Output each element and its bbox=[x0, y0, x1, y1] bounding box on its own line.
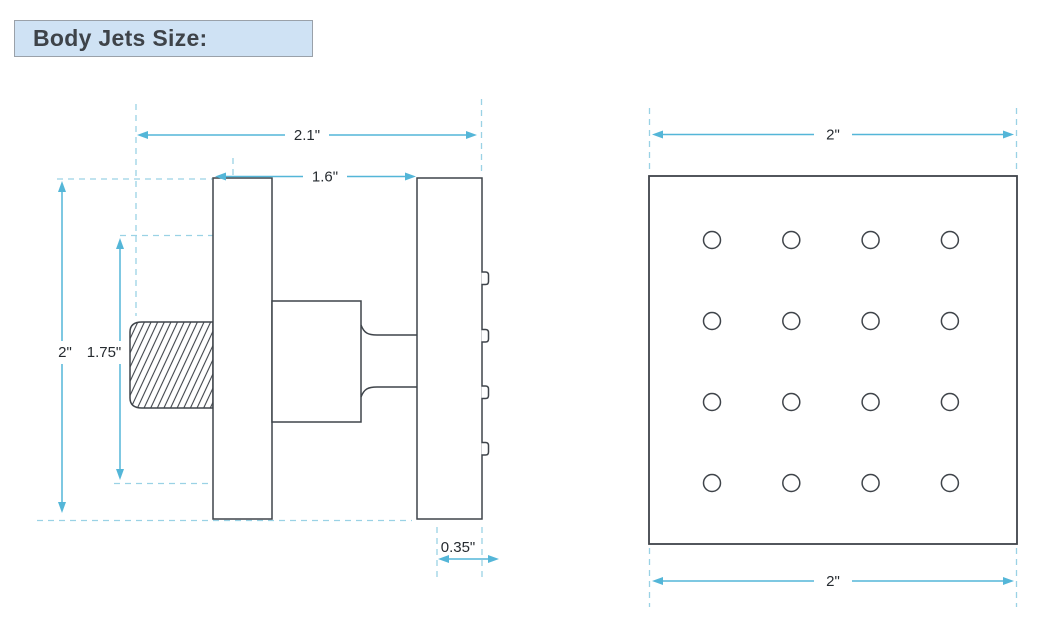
mounting-plate bbox=[213, 178, 272, 519]
dimension-label: 2" bbox=[826, 573, 840, 590]
neck-top-edge bbox=[361, 325, 417, 335]
arrowhead-down-icon bbox=[116, 469, 124, 480]
body-jet-drawing: 2.1" 1.6" 2" bbox=[0, 0, 1051, 642]
faceplate-front-face bbox=[649, 176, 1017, 544]
nozzle-hole bbox=[704, 313, 721, 330]
nozzle-hole bbox=[783, 394, 800, 411]
nozzle-tab-1 bbox=[482, 272, 489, 285]
arrowhead-down-icon bbox=[58, 502, 66, 513]
side-view-diagram: 2.1" 1.6" 2" bbox=[37, 99, 499, 579]
arrowhead-right-icon bbox=[488, 555, 499, 563]
arrowhead-right-icon bbox=[1003, 577, 1014, 585]
nozzle-hole bbox=[862, 313, 879, 330]
nozzle-hole bbox=[704, 394, 721, 411]
dimension-overall-depth: 2.1" bbox=[137, 127, 477, 144]
dimension-label: 1.75" bbox=[87, 344, 122, 361]
nozzle-hole bbox=[941, 313, 958, 330]
nozzle-hole bbox=[783, 313, 800, 330]
nozzle-hole bbox=[862, 475, 879, 492]
arrowhead-left-icon bbox=[652, 131, 663, 139]
nozzle-hole bbox=[862, 394, 879, 411]
nozzle-hole bbox=[941, 475, 958, 492]
valve-body-block bbox=[272, 301, 361, 422]
nozzle-tab-2 bbox=[482, 330, 489, 343]
nozzle-tab-3 bbox=[482, 386, 489, 399]
nozzle-hole bbox=[704, 232, 721, 249]
arrowhead-left-icon bbox=[438, 555, 449, 563]
page: Body Jets Size: bbox=[0, 0, 1051, 642]
dimension-inner-height: 1.75" bbox=[87, 238, 124, 480]
nozzle-tab-4 bbox=[482, 443, 489, 456]
arrowhead-left-icon bbox=[137, 131, 148, 139]
dimension-label: 0.35" bbox=[441, 539, 476, 556]
arrowhead-left-icon bbox=[652, 577, 663, 585]
front-view-diagram: 2" 2" bbox=[649, 108, 1017, 607]
neck-bottom-edge bbox=[361, 387, 417, 397]
nozzle-hole bbox=[862, 232, 879, 249]
dimension-label: 2" bbox=[58, 344, 72, 361]
dimension-label: 2.1" bbox=[294, 127, 320, 144]
dimension-label: 2" bbox=[826, 127, 840, 144]
dimension-overall-height: 2" bbox=[58, 181, 72, 513]
faceplate bbox=[417, 178, 482, 519]
dimension-front-width-bottom: 2" bbox=[652, 573, 1014, 590]
nozzle-hole bbox=[704, 475, 721, 492]
nozzle-hole bbox=[941, 394, 958, 411]
nozzle-hole bbox=[783, 232, 800, 249]
dimension-label: 1.6" bbox=[312, 169, 338, 186]
arrowhead-right-icon bbox=[466, 131, 477, 139]
arrowhead-up-icon bbox=[58, 181, 66, 192]
dimension-faceplate-thickness: 0.35" bbox=[438, 539, 499, 563]
dimension-front-width-top: 2" bbox=[652, 127, 1014, 144]
nozzle-hole bbox=[941, 232, 958, 249]
threaded-shaft bbox=[130, 322, 213, 408]
arrowhead-right-icon bbox=[1003, 131, 1014, 139]
arrowhead-up-icon bbox=[116, 238, 124, 249]
nozzle-hole bbox=[783, 475, 800, 492]
arrowhead-right-icon bbox=[405, 173, 416, 181]
